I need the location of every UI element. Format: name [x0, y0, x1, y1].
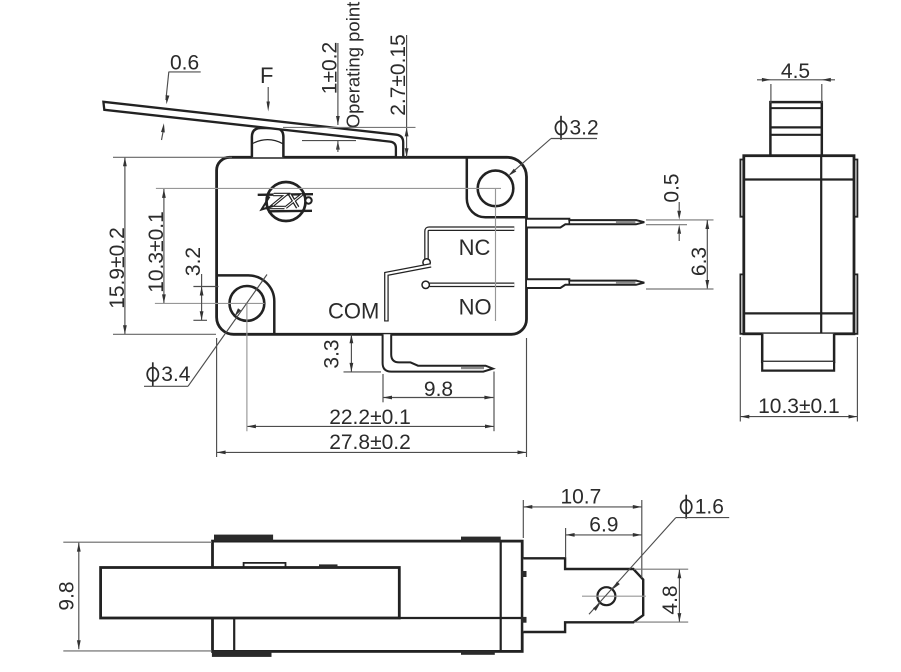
svg-text:3.2: 3.2	[182, 247, 205, 276]
svg-text:COM: COM	[328, 298, 379, 323]
svg-text:22.2±0.1: 22.2±0.1	[329, 406, 411, 429]
svg-text:10.7: 10.7	[560, 486, 601, 509]
svg-text:9.8: 9.8	[56, 581, 79, 610]
svg-text:3.3: 3.3	[321, 339, 344, 368]
svg-text:3.4: 3.4	[161, 363, 191, 386]
svg-text:27.8±0.2: 27.8±0.2	[329, 431, 411, 454]
svg-text:Operating point: Operating point	[343, 2, 364, 129]
svg-text:F: F	[260, 63, 273, 88]
svg-text:10.3±0.1: 10.3±0.1	[758, 395, 840, 418]
svg-text:4.8: 4.8	[659, 585, 682, 614]
svg-text:1.6: 1.6	[695, 496, 724, 519]
svg-text:NO: NO	[459, 295, 492, 320]
svg-text:0.5: 0.5	[660, 173, 683, 202]
svg-text:0.6: 0.6	[170, 52, 199, 75]
svg-text:6.9: 6.9	[589, 514, 618, 537]
svg-text:NC: NC	[459, 235, 491, 260]
svg-text:3.2: 3.2	[570, 117, 599, 140]
